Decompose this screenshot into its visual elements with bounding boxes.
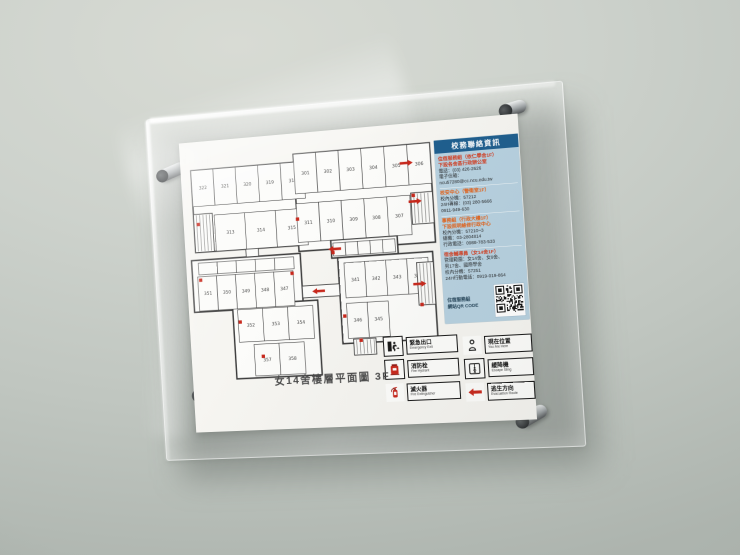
room-number: 352 — [247, 323, 256, 329]
fire-equipment-icon — [262, 355, 265, 358]
emergency-exit-icon — [383, 336, 404, 357]
legend-item: 滅火器Fire Extinguisher — [386, 381, 462, 402]
legend-label-en: Escape Sling — [492, 367, 531, 372]
fire-equipment-icon — [199, 279, 202, 282]
room-number: 354 — [297, 320, 306, 327]
room-number: 347 — [280, 286, 289, 293]
legend-label: 緩降機Escape Sling — [487, 357, 534, 377]
contact-section: 宿舍輔導員（女14舍1F）管理範圍：女14舍、女9舍、男17舍、國際學舍校內分機… — [444, 245, 524, 283]
qr-code — [494, 283, 526, 317]
legend-label: 逃生方向Evacuation Route — [487, 381, 536, 401]
contact-panel: 校務聯絡資訊 住宿服務組（依仁學舍1F）下設各舍區行政辦公室電話：(03) 42… — [434, 134, 530, 324]
fire-equipment-icon — [296, 218, 299, 221]
room-number: 350 — [223, 289, 232, 296]
room-number: 342 — [372, 276, 381, 283]
qr-caption-line2: 網站QR CODE — [448, 302, 479, 310]
room-number: 351 — [204, 291, 213, 297]
room-number: 343 — [393, 274, 402, 281]
qr-row: 住宿服務組 網站QR CODE — [443, 281, 530, 324]
evacuation-route-icon — [465, 383, 485, 402]
contact-section: 事務組（行政大樓1F）下設照明維修行政中心校內分機：57210~3總機：03-2… — [442, 211, 522, 250]
room-number: 349 — [242, 288, 251, 295]
escape-sling-icon — [464, 358, 486, 379]
floorplan-sign: 3223213203193183133143153013023033043053… — [179, 114, 537, 433]
legend-label-en: You Are Here — [488, 344, 529, 350]
fire-equipment-icon — [239, 320, 242, 323]
room-number: 348 — [261, 287, 270, 294]
room-number: 341 — [351, 277, 360, 284]
fire-equipment-icon — [360, 339, 363, 342]
legend-label-en: Fire Extinguisher — [411, 391, 458, 397]
legend-item: 現在位置You Are Here — [462, 333, 532, 355]
fire-equipment-icon — [331, 251, 334, 254]
legend-label: 現在位置You Are Here — [484, 333, 533, 353]
contact-sections: 住宿服務組（依仁學舍1F）下設各舍區行政辦公室電話：(03) 426-2626電… — [435, 147, 528, 286]
legend-item: 逃生方向Evacuation Route — [465, 380, 535, 401]
fire-equipment-icon — [291, 272, 294, 275]
legend-label-en: Fire Hydrant — [411, 368, 456, 374]
legend-label-en: Evacuation Route — [491, 391, 532, 396]
acrylic-panel: 3223213203193183133143153013023033043053… — [146, 81, 587, 461]
fire-equipment-icon — [412, 194, 415, 197]
room-number: 358 — [288, 356, 297, 362]
legend-label: 消防栓Fire Hydrant — [407, 357, 460, 377]
room-number: 353 — [272, 321, 281, 328]
legend-label: 滅火器Fire Extinguisher — [407, 381, 462, 401]
fire-equipment-icon — [343, 314, 346, 317]
fire-equipment-icon — [421, 303, 424, 306]
fire-equipment-icon — [197, 223, 200, 226]
room-number: 346 — [353, 317, 362, 324]
qr-caption: 住宿服務組 網站QR CODE — [447, 295, 478, 310]
you-are-here-icon — [462, 336, 482, 355]
room-number: 345 — [374, 316, 383, 323]
legend-label: 緊急出口Emergency Exit — [406, 334, 459, 354]
legend-column-right: 現在位置You Are Here緩降機Escape Sling逃生方向Evacu… — [462, 333, 535, 402]
legend-item: 緊急出口Emergency Exit — [383, 334, 459, 356]
fire-extinguisher-icon — [386, 383, 405, 402]
legend-item: 緩降機Escape Sling — [464, 357, 534, 379]
